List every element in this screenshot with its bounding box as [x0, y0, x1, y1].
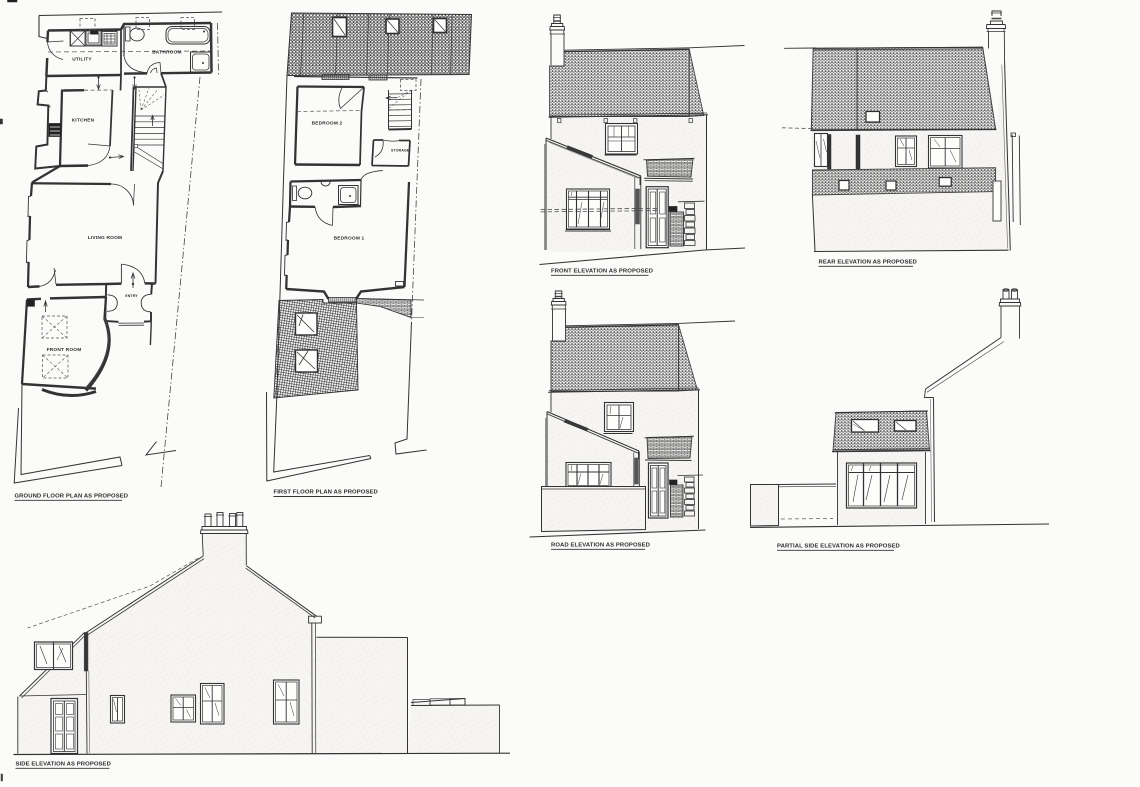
svg-text:BEDROOM 1: BEDROOM 1	[334, 236, 365, 242]
svg-text:FRONT ROOM: FRONT ROOM	[47, 347, 82, 353]
svg-text:BEDROOM 2: BEDROOM 2	[312, 121, 343, 127]
svg-text:ROAD ELEVATION AS PROPOSED: ROAD ELEVATION AS PROPOSED	[551, 543, 650, 549]
svg-text:ENTRY: ENTRY	[125, 294, 138, 298]
svg-text:BATHROOM: BATHROOM	[152, 50, 182, 56]
svg-text:FIRST FLOOR PLAN AS PROPOSED: FIRST FLOOR PLAN AS PROPOSED	[274, 490, 378, 496]
svg-text:SIDE ELEVATION AS PROPOSED: SIDE ELEVATION AS PROPOSED	[16, 762, 111, 768]
svg-text:LIVING ROOM: LIVING ROOM	[88, 235, 122, 241]
svg-text:KITCHEN: KITCHEN	[72, 118, 95, 124]
svg-text:STORAGE: STORAGE	[391, 149, 410, 153]
svg-text:GROUND FLOOR PLAN AS PROPOSED: GROUND FLOOR PLAN AS PROPOSED	[15, 494, 129, 500]
svg-text:REAR ELEVATION AS PROPOSED: REAR ELEVATION AS PROPOSED	[819, 260, 917, 266]
svg-text:FRONT ELEVATION AS PROPOSED: FRONT ELEVATION AS PROPOSED	[551, 269, 653, 275]
svg-text:UTILITY: UTILITY	[72, 57, 92, 63]
svg-text:PARTIAL SIDE ELEVATION AS PROP: PARTIAL SIDE ELEVATION AS PROPOSED	[777, 544, 900, 550]
